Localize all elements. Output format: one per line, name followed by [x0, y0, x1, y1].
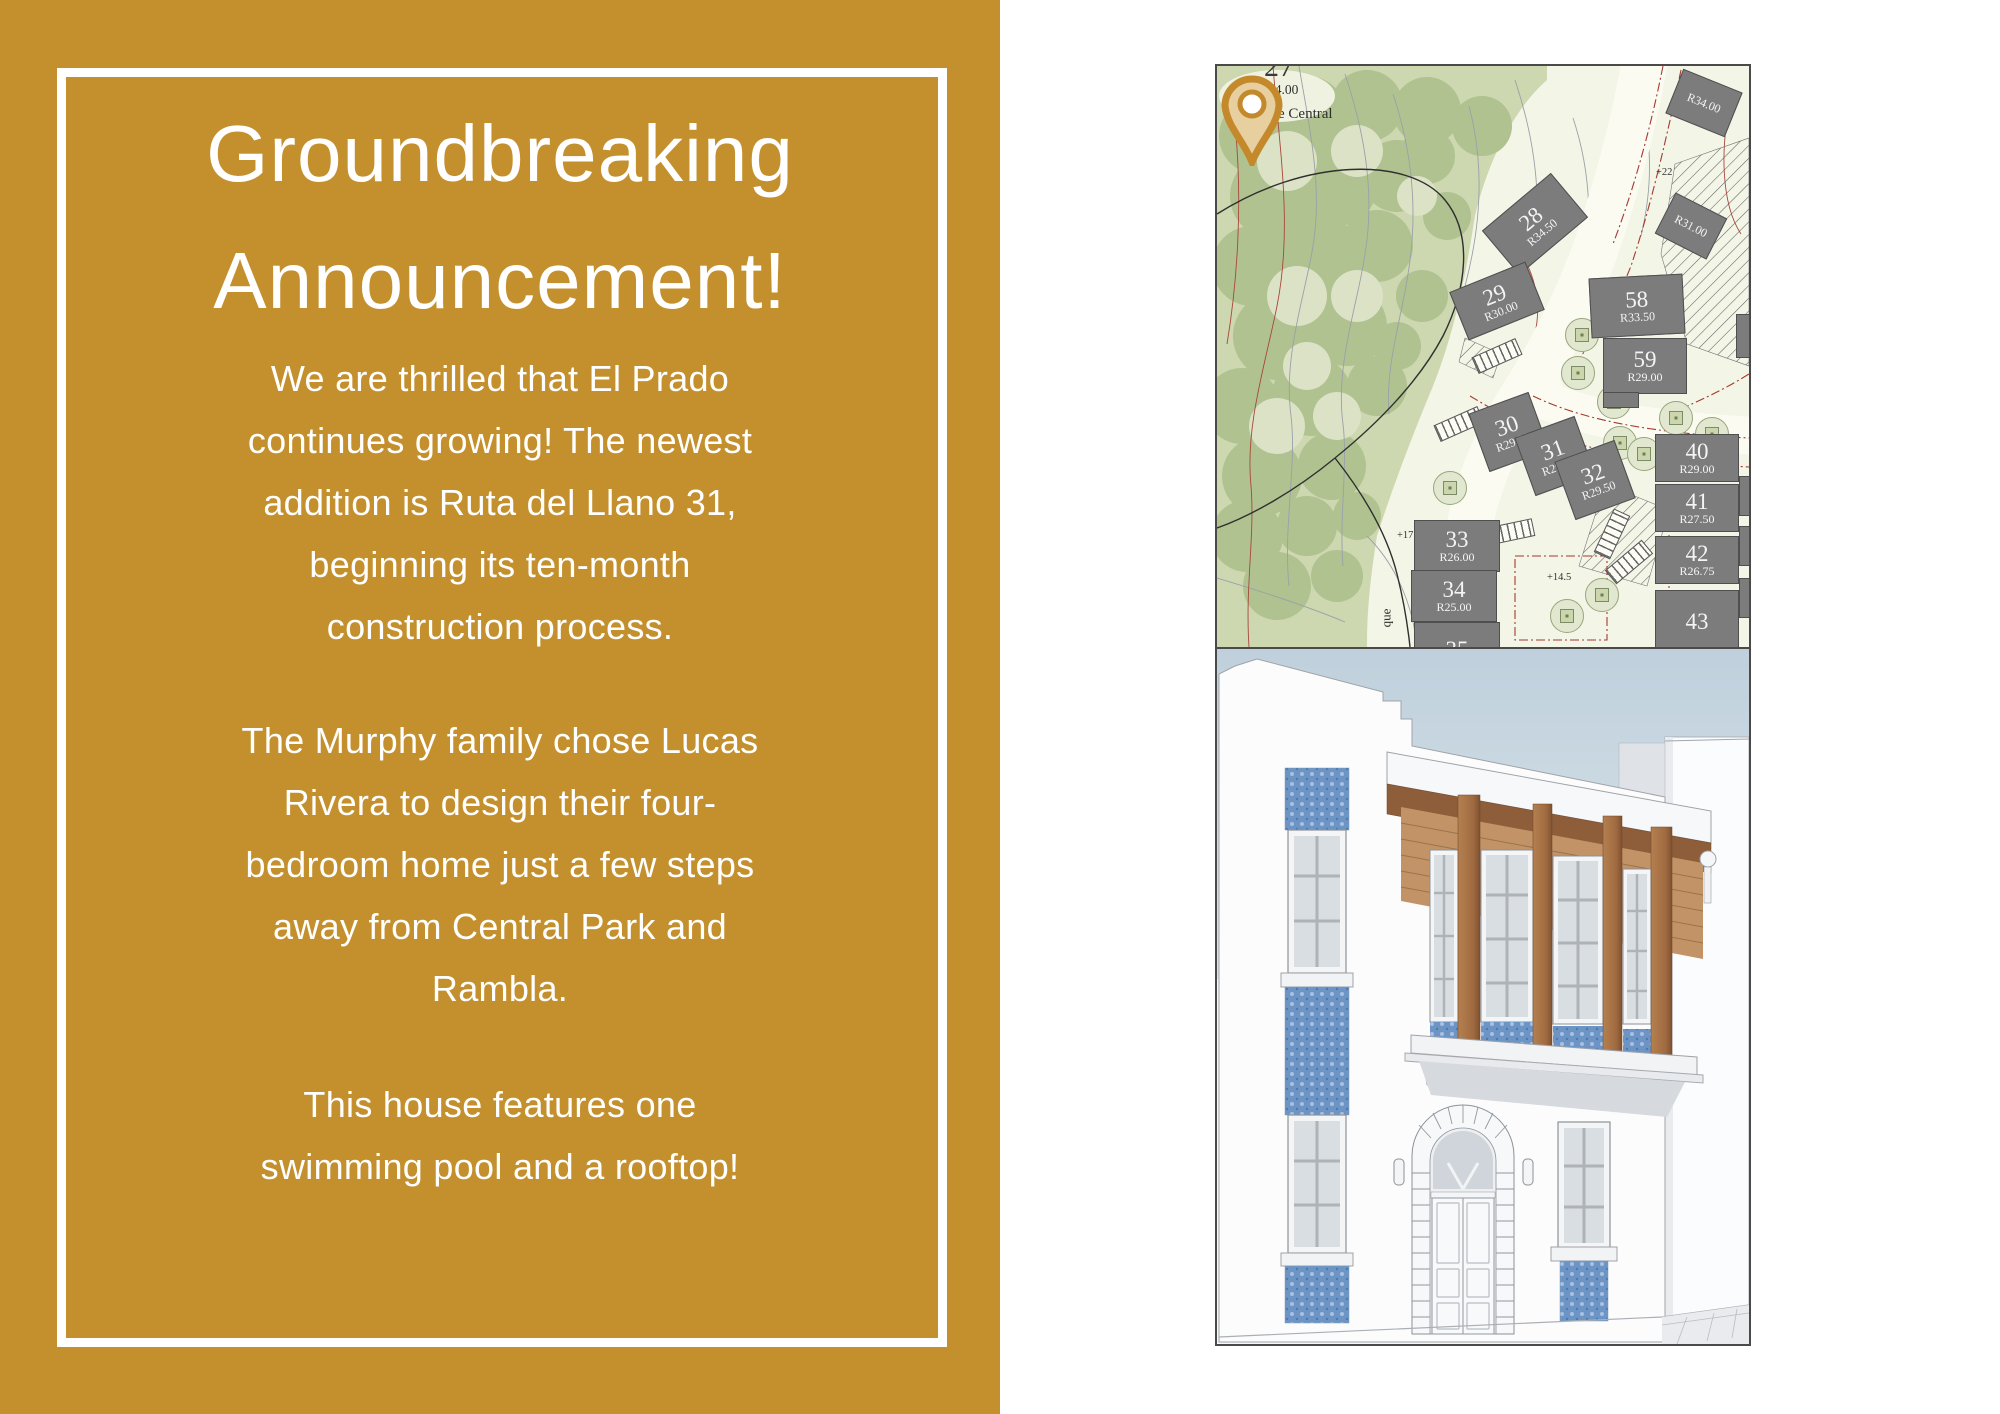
map-lot-29: 29R30.00 — [1449, 262, 1545, 341]
announcement-flyer: Groundbreaking Announcement! We are thri… — [0, 0, 2000, 1414]
spot-elevation: +22 — [1656, 167, 1672, 178]
house-drawing — [1217, 649, 1749, 1344]
house-elevation-rendering — [1215, 649, 1751, 1346]
left-window-strip — [1281, 768, 1353, 1323]
site-plan-map: 27 R24.00 Parque Central Ruta del Llano … — [1215, 64, 1751, 649]
map-lot-28: 28R34.50 — [1482, 173, 1588, 275]
spot-elevation: +14.5 — [1547, 572, 1571, 583]
tree-icon — [1659, 401, 1693, 435]
map-lot — [1739, 578, 1751, 618]
stairs-icon — [1594, 508, 1631, 559]
spot-elevation: +17 — [1397, 530, 1413, 541]
map-lot-34: 34R25.00 — [1411, 570, 1497, 622]
gold-panel: Groundbreaking Announcement! We are thri… — [0, 0, 1000, 1414]
tree-icon — [1585, 578, 1619, 612]
map-lot — [1739, 526, 1751, 566]
tree-icon — [1550, 599, 1584, 633]
paragraph-family: The Murphy family chose Lucas Rivera to … — [0, 710, 1000, 1020]
map-lot-41: 41R27.50 — [1655, 484, 1739, 532]
map-lot-43: 43 — [1655, 590, 1739, 649]
tree-icon — [1433, 471, 1467, 505]
arched-door — [1412, 1105, 1514, 1334]
vertical-street-label: que — [1378, 609, 1394, 628]
map-lot-40: 40R29.00 — [1655, 434, 1739, 482]
paragraph-intro: We are thrilled that El Prado continues … — [0, 348, 1000, 658]
map-lot: R34.00 — [1665, 69, 1742, 137]
image-column: 27 R24.00 Parque Central Ruta del Llano … — [1215, 64, 1747, 1346]
tree-icon — [1561, 356, 1595, 390]
page-title: Groundbreaking Announcement! — [0, 90, 1000, 344]
map-lot-59: 59R29.00 — [1603, 338, 1687, 394]
sconce-right — [1523, 1159, 1533, 1185]
sconce-left — [1394, 1159, 1404, 1185]
paragraph-features: This house features one swimming pool an… — [0, 1074, 1000, 1198]
location-pin-icon — [1217, 66, 1287, 166]
map-lot-35: 35 — [1414, 622, 1500, 649]
site-plan-overlay: 27 R24.00 Parque Central Ruta del Llano … — [1217, 66, 1749, 647]
map-lot-33: 33R26.00 — [1414, 520, 1500, 572]
map-lot-42: 42R26.75 — [1655, 536, 1739, 584]
map-lot — [1739, 476, 1751, 516]
map-lot — [1736, 314, 1751, 358]
stairs-icon — [1471, 338, 1522, 374]
map-lot — [1603, 392, 1639, 408]
map-lot: R31.00 — [1655, 192, 1728, 259]
ground-floor-window — [1551, 1122, 1617, 1321]
map-lot-58: 58R33.50 — [1588, 274, 1685, 339]
